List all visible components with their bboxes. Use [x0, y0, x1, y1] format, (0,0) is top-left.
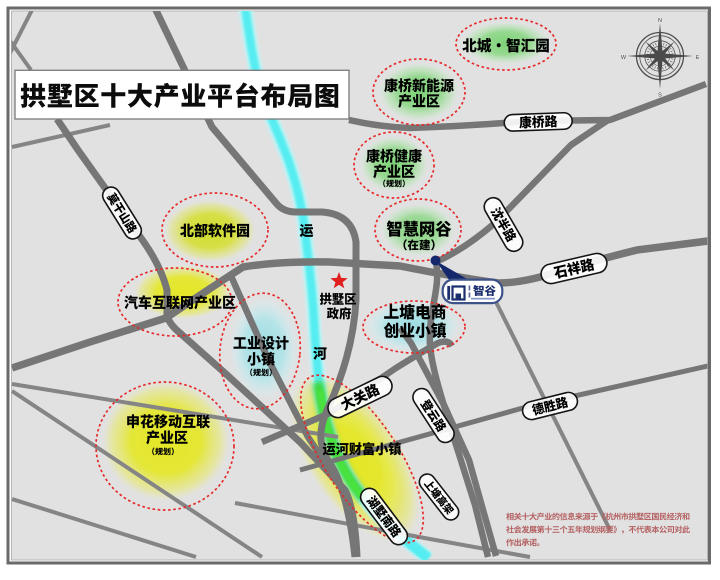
- svg-text:W: W: [621, 55, 627, 61]
- svg-text:E: E: [696, 55, 700, 61]
- svg-text:N: N: [658, 18, 662, 24]
- svg-text:S: S: [658, 92, 662, 98]
